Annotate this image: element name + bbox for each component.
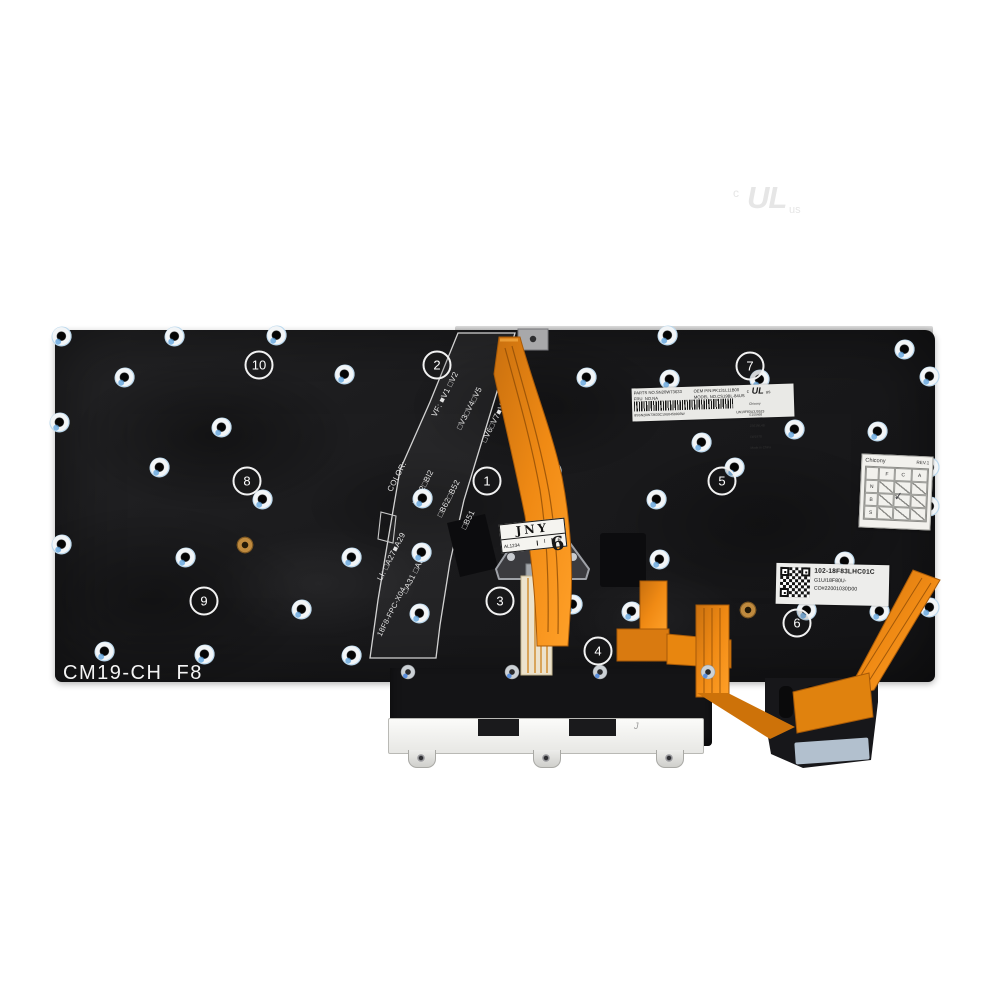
flex-cable-layer <box>0 0 1000 1000</box>
qr-finder-icon <box>780 567 789 576</box>
qr-label-text-block: 102-18F83LHC01C G1U/18F80U- CO#22001030D… <box>814 568 875 602</box>
qr-label-line2: G1U/18F80U- <box>814 577 875 584</box>
callout-8: 8 <box>233 467 262 496</box>
cert-c: c <box>747 389 749 394</box>
qr-code-icon <box>780 567 811 598</box>
rev-cell <box>911 482 928 496</box>
rev-cell <box>878 480 895 494</box>
cable-link <box>697 693 795 739</box>
cable-wrap <box>793 673 873 733</box>
maker-info-block: Chicony E150468 JS61NL4B LW1978 Made in … <box>749 395 772 458</box>
qr-serial-label: 102-18F83LHC01C G1U/18F80U- CO#22001030D… <box>776 563 890 606</box>
rev-version-text: REV.1 <box>916 460 929 466</box>
rev-cell <box>877 493 894 507</box>
rev-cell <box>910 495 927 509</box>
qr-label-line1: 102-18F83LHC01C <box>814 568 875 576</box>
barcode-part-label: PARTS NO.SN20W73633 OEM P/N:PK131L11B00 … <box>632 383 795 421</box>
rev-cell <box>893 507 910 521</box>
rev-col-header: F <box>878 467 895 481</box>
silver-screw-icon <box>593 665 608 680</box>
rev-col-header: A <box>911 469 928 483</box>
rev-cell <box>909 508 926 522</box>
callout-4: 4 <box>584 637 613 666</box>
callout-6: 6 <box>783 609 812 638</box>
ul-mark-icon: UL <box>751 385 763 395</box>
callout-10: 10 <box>245 351 274 380</box>
callout-5: 5 <box>708 467 737 496</box>
callout-9: 9 <box>190 587 219 616</box>
cable-fold <box>640 581 667 631</box>
jny-cell: AL1234 <box>502 540 538 549</box>
silver-screw-icon <box>401 665 416 680</box>
maker-line: LW1978 <box>750 436 771 440</box>
cable-fold <box>617 629 669 661</box>
rev-row-header: S <box>864 506 878 520</box>
qr-finder-icon <box>801 567 810 576</box>
callout-2: 2 <box>423 351 452 380</box>
maker-line: Chicony <box>749 403 770 407</box>
maker-line: JS61NL4B <box>750 425 771 429</box>
cert-us: us <box>766 389 771 394</box>
rev-row-header: B <box>864 493 878 507</box>
keyboard-backside-photo: c UL us J <box>0 0 1000 1000</box>
anchor-hole-icon <box>530 336 536 342</box>
rev-cell <box>866 467 880 481</box>
silver-screw-icon <box>701 665 716 680</box>
callout-3: 3 <box>486 587 515 616</box>
rev-maker-text: Chicony <box>865 458 885 465</box>
callout-1: 1 <box>473 467 502 496</box>
barcode-icon <box>634 398 733 411</box>
silver-screw-icon <box>505 665 520 680</box>
rev-inspection-label: Chicony REV.1 F C A N B S ✓ <box>858 453 933 530</box>
qr-label-line3: CO#22001030D00 <box>814 586 875 593</box>
rev-cell <box>877 506 894 520</box>
handwritten-mark: 6 <box>550 532 566 556</box>
rev-checkmark: ✓ <box>893 490 903 504</box>
maker-line: E150468 <box>749 414 770 418</box>
callout-7: 7 <box>736 352 765 381</box>
qr-finder-icon <box>780 588 789 597</box>
rev-row-header: N <box>865 480 879 494</box>
rev-col-header: C <box>895 468 912 482</box>
barcode-number-text: 8SSN20W73633C19U0450003W <box>634 412 684 418</box>
made-in-text: Made in China <box>750 447 771 451</box>
